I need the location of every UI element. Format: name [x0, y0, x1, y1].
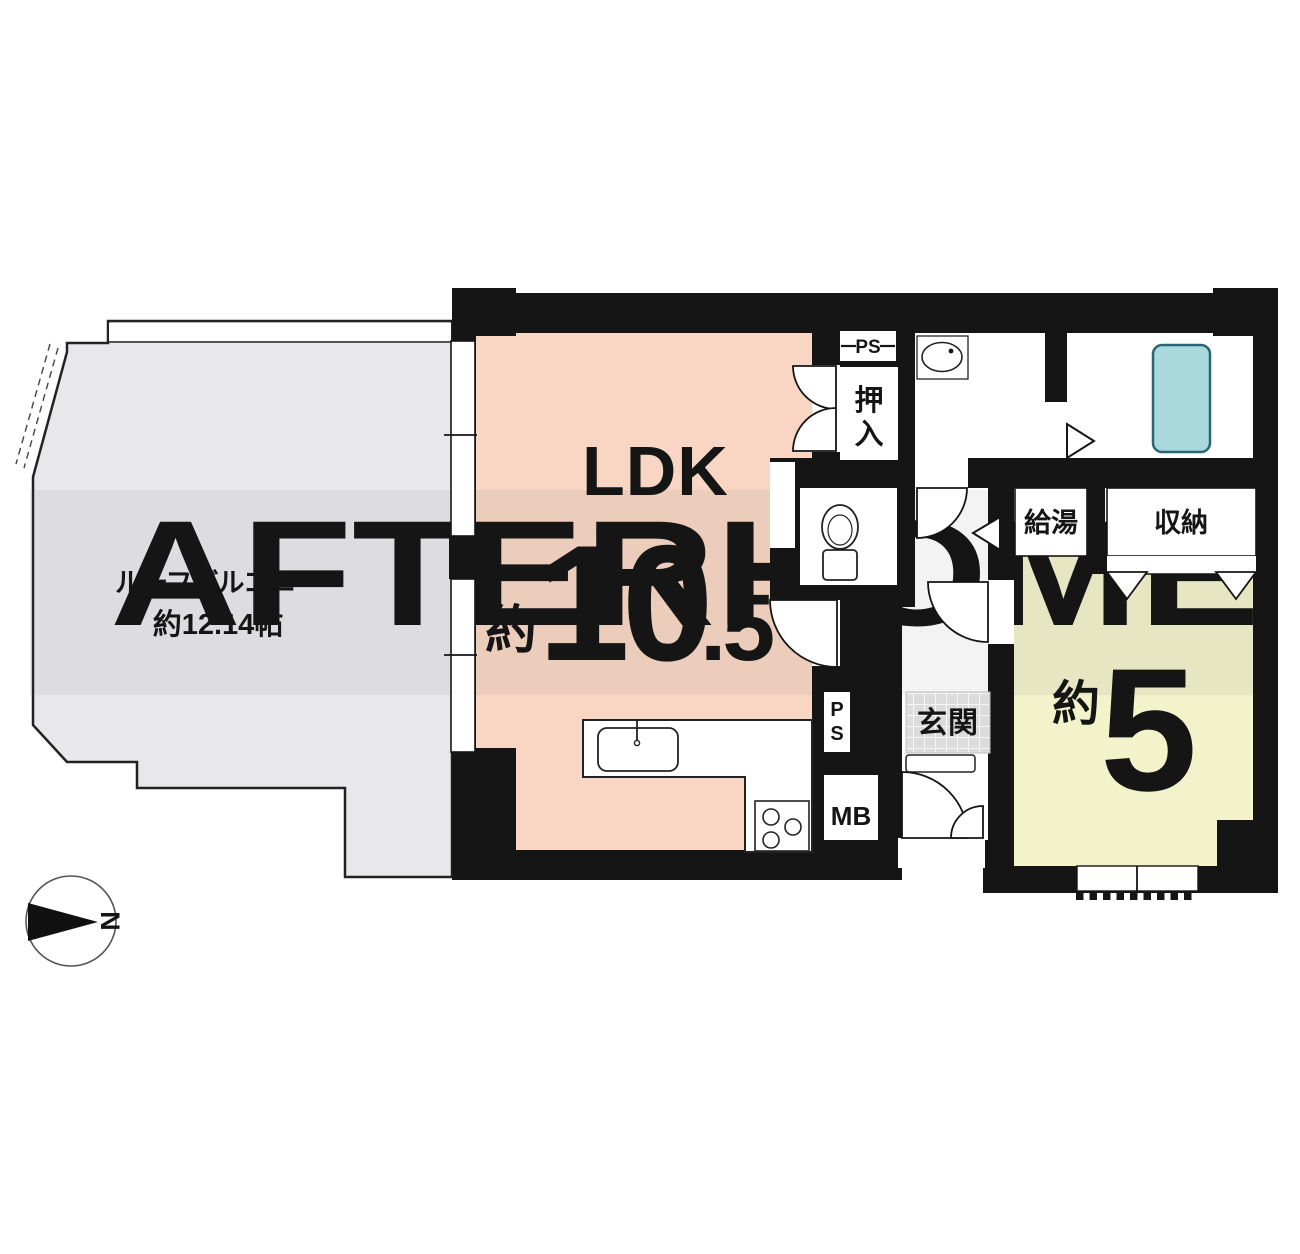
floorplan-drawing: AFTERHOME [0, 0, 1300, 1254]
louver-teeth [1076, 891, 1192, 900]
oshiire-label-2: 入 [854, 419, 883, 451]
toilet-tank [823, 550, 857, 580]
wall-top [452, 293, 1278, 333]
balcony-label-line1: ルーフバルコニー [115, 568, 321, 598]
wall-corner-top-left [452, 288, 516, 336]
floorplan-page: AFTERHOME [0, 0, 1300, 1254]
shuno-label: 収納 [1154, 507, 1208, 538]
ps-side-label-p: P [830, 699, 843, 721]
ps-side-label-s: S [830, 723, 843, 745]
oshiire-label-1: 押 [854, 384, 883, 417]
genkan-label: 玄関 [917, 706, 979, 740]
toilet-side-gap [770, 462, 795, 548]
wash-basin-bowl [922, 343, 962, 372]
entrance-step [906, 755, 975, 772]
compass: N [26, 876, 125, 966]
compass-north-label: N [95, 911, 125, 931]
wall-left-chunk [449, 537, 478, 579]
front-door-gap [898, 838, 985, 868]
mb-label: MB [831, 801, 871, 831]
ldk-window-lower [451, 579, 475, 752]
balcony-label-line2: 約12.14帖 [153, 607, 284, 641]
kyuto-label: 給湯 [1024, 507, 1078, 538]
bathtub [1153, 345, 1210, 452]
bedroom-door-gap [988, 580, 1014, 644]
wall-left-bottom-block [452, 748, 516, 852]
balcony-rail-band [109, 323, 451, 341]
ldk-window-upper [451, 341, 475, 536]
kitchen-sink [598, 728, 678, 771]
wall-bottom-ldk [452, 850, 840, 880]
wall-closet-divider [1087, 488, 1105, 574]
ps-top-label: PS [855, 337, 880, 358]
wall-right [1253, 293, 1278, 885]
toilet-bowl [822, 505, 858, 549]
ldk-label: LDK [582, 432, 729, 510]
washroom-door-gap [915, 458, 968, 488]
wash-basin-drain [949, 349, 954, 354]
wall-bath-stub [1045, 333, 1067, 402]
